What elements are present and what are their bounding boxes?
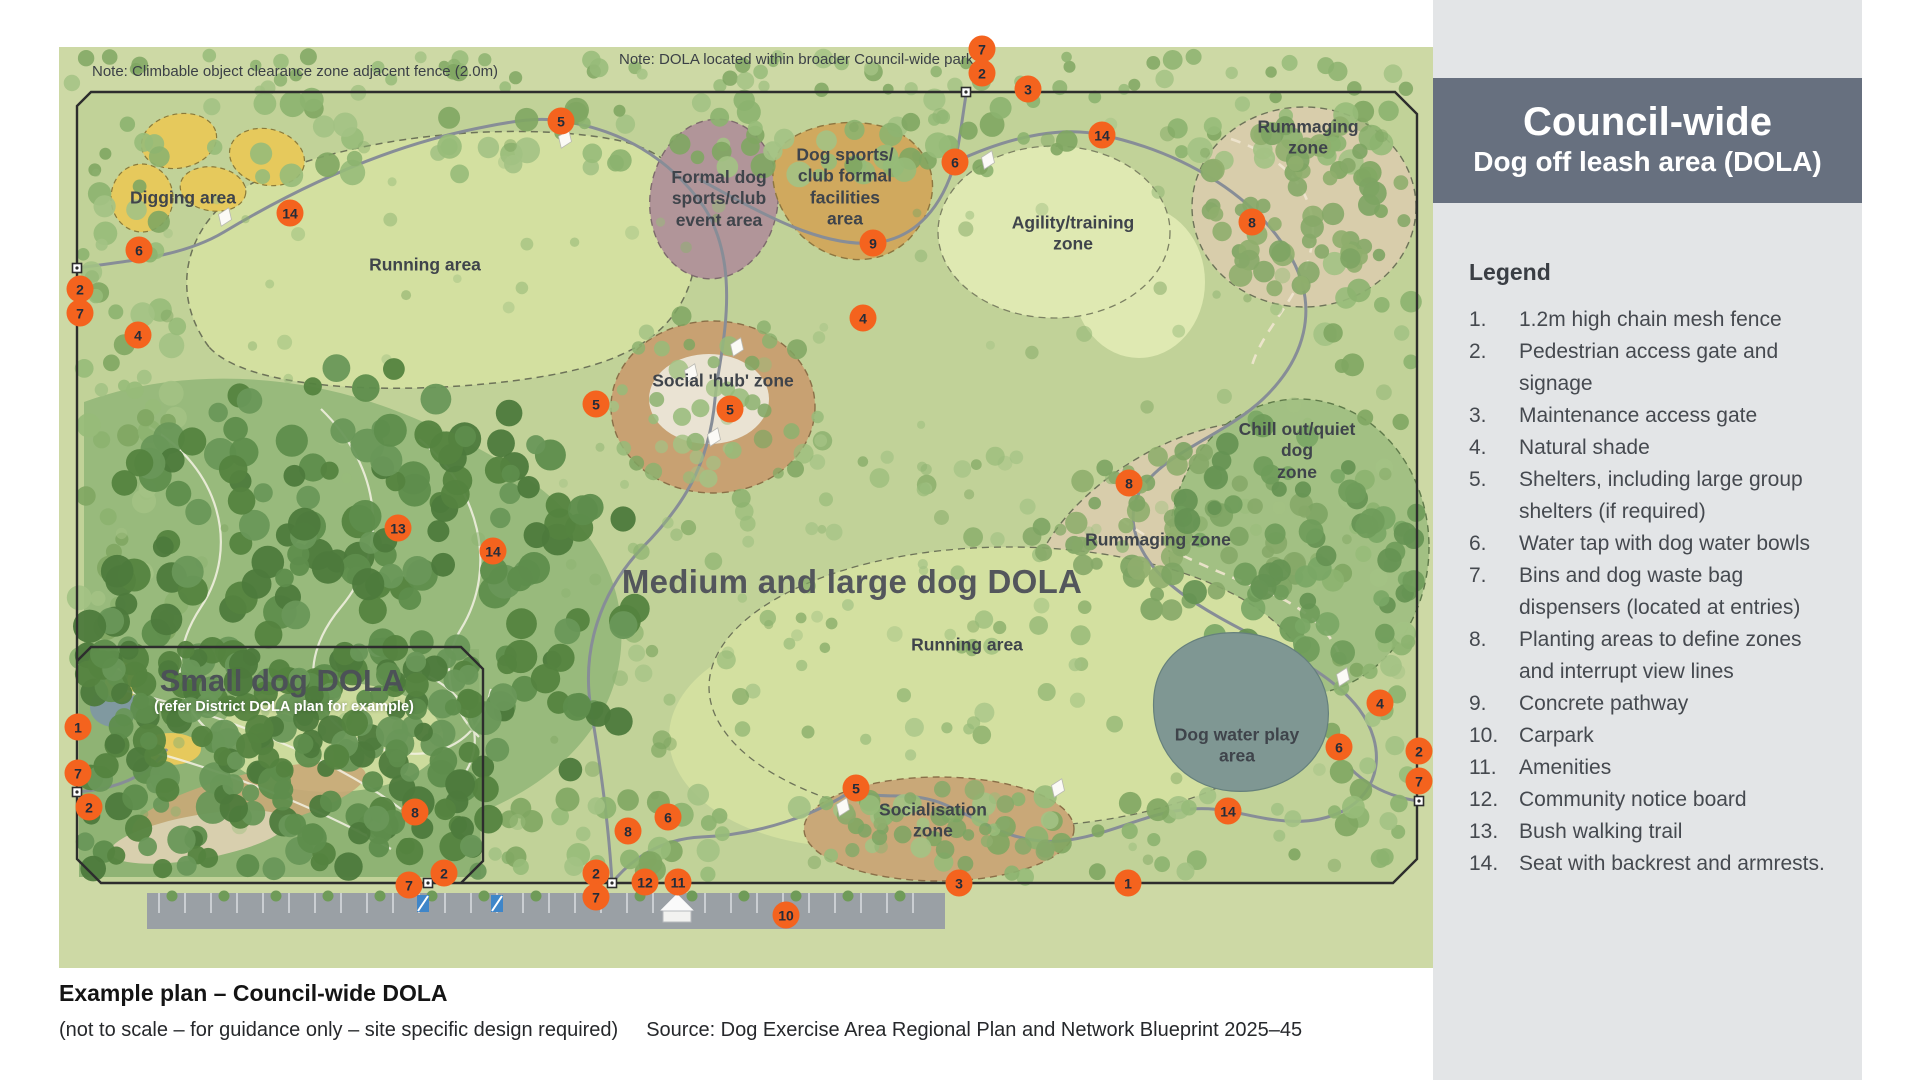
map-marker-2: 2: [1406, 738, 1433, 765]
legend-item: 2.Pedestrian access gate and signage: [1469, 336, 1836, 400]
map-marker-4: 4: [125, 322, 152, 349]
legend-item: 7.Bins and dog waste bag dispensers (loc…: [1469, 560, 1836, 624]
legend-item-label: Bush walking trail: [1519, 816, 1836, 848]
zone-label-small-dog-dola: Small dog DOLA: [160, 662, 405, 700]
zone-label-rummaging-zone-mid: Rummaging zone: [1085, 529, 1231, 550]
map-marker-2: 2: [431, 860, 458, 887]
legend-item: 10.Carpark: [1469, 720, 1836, 752]
legend-title: Legend: [1469, 259, 1836, 286]
legend-item-label: Bins and dog waste bag dispensers (locat…: [1519, 560, 1836, 624]
map-marker-14: 14: [1089, 122, 1116, 149]
caption: Example plan – Council-wide DOLA (not to…: [59, 980, 1302, 1042]
note-dola-park: Note: DOLA located within broader Counci…: [619, 51, 973, 68]
map-marker-2: 2: [76, 794, 103, 821]
map-marker-6: 6: [942, 149, 969, 176]
map-marker-2: 2: [969, 60, 996, 87]
legend-item-label: Shelters, including large group shelters…: [1519, 464, 1836, 528]
map-marker-7: 7: [67, 300, 94, 327]
zone-label-small-dog-dola-sub: (refer District DOLA plan for example): [154, 699, 414, 717]
legend-item: 1.1.2m high chain mesh fence: [1469, 304, 1836, 336]
legend-item-label: 1.2m high chain mesh fence: [1519, 304, 1836, 336]
park-map: Note: Climbable object clearance zone ad…: [59, 47, 1433, 968]
zone-label-rummaging-zone-top: Rummaging zone: [1246, 117, 1371, 160]
legend-item: 8.Planting areas to define zones and int…: [1469, 624, 1836, 688]
legend-item-number: 13.: [1469, 816, 1519, 848]
legend: Legend 1.1.2m high chain mesh fence2.Ped…: [1433, 203, 1862, 880]
legend-item: 14.Seat with backrest and armrests.: [1469, 848, 1836, 880]
zone-label-running-area-bottom: Running area: [911, 634, 1023, 655]
map-marker-14: 14: [1215, 798, 1242, 825]
sidebar: Council-wide Dog off leash area (DOLA) L…: [1433, 0, 1862, 1080]
legend-item-label: Carpark: [1519, 720, 1836, 752]
map-marker-8: 8: [1239, 209, 1266, 236]
legend-item-number: 6.: [1469, 528, 1519, 560]
page: Note: Climbable object clearance zone ad…: [0, 0, 1920, 1080]
legend-item-label: Pedestrian access gate and signage: [1519, 336, 1836, 400]
map-marker-2: 2: [67, 276, 94, 303]
map-marker-13: 13: [385, 515, 412, 542]
legend-item-number: 14.: [1469, 848, 1519, 880]
map-marker-1: 1: [65, 714, 92, 741]
map-marker-5: 5: [583, 391, 610, 418]
map-marker-6: 6: [126, 237, 153, 264]
page-subtitle: Dog off leash area (DOLA): [1445, 144, 1850, 179]
map-marker-4: 4: [850, 305, 877, 332]
map-marker-7: 7: [65, 760, 92, 787]
map-marker-12: 12: [632, 869, 659, 896]
legend-item-number: 7.: [1469, 560, 1519, 624]
map-marker-6: 6: [655, 804, 682, 831]
legend-item-label: Natural shade: [1519, 432, 1836, 464]
map-marker-3: 3: [1015, 76, 1042, 103]
legend-item-label: Planting areas to define zones and inter…: [1519, 624, 1836, 688]
map-marker-10: 10: [773, 902, 800, 929]
map-marker-8: 8: [1116, 470, 1143, 497]
map-marker-5: 5: [717, 396, 744, 423]
map-marker-9: 9: [860, 230, 887, 257]
map-marker-14: 14: [277, 200, 304, 227]
legend-item-number: 10.: [1469, 720, 1519, 752]
legend-item-number: 3.: [1469, 400, 1519, 432]
map-marker-2: 2: [583, 860, 610, 887]
zone-label-chill-out-zone: Chill out/quiet dog zone: [1229, 419, 1365, 483]
page-title: Council-wide: [1445, 100, 1850, 144]
caption-title: Example plan – Council-wide DOLA: [59, 980, 1302, 1007]
legend-item: 3.Maintenance access gate: [1469, 400, 1836, 432]
zone-label-running-area-top: Running area: [369, 254, 481, 275]
legend-item-number: 4.: [1469, 432, 1519, 464]
legend-item-number: 8.: [1469, 624, 1519, 688]
legend-item-label: Seat with backrest and armrests.: [1519, 848, 1836, 880]
legend-item-number: 9.: [1469, 688, 1519, 720]
zone-label-club-facilities-area: Dog sports/ club formal facilities area: [796, 144, 893, 229]
legend-item-number: 11.: [1469, 752, 1519, 784]
map-marker-5: 5: [548, 108, 575, 135]
sidebar-header: Council-wide Dog off leash area (DOLA): [1433, 78, 1862, 203]
map-marker-7: 7: [396, 872, 423, 899]
legend-item-label: Maintenance access gate: [1519, 400, 1836, 432]
map-marker-8: 8: [615, 818, 642, 845]
map-marker-7: 7: [1406, 768, 1433, 795]
legend-item-number: 2.: [1469, 336, 1519, 400]
map-marker-7: 7: [969, 36, 996, 63]
map-marker-6: 6: [1326, 734, 1353, 761]
legend-item: 9.Concrete pathway: [1469, 688, 1836, 720]
map-marker-11: 11: [665, 869, 692, 896]
legend-list: 1.1.2m high chain mesh fence2.Pedestrian…: [1469, 304, 1836, 880]
legend-item-label: Concrete pathway: [1519, 688, 1836, 720]
legend-item: 12.Community notice board: [1469, 784, 1836, 816]
zone-label-medium-large-dola: Medium and large dog DOLA: [622, 562, 1082, 602]
caption-note: (not to scale – for guidance only – site…: [59, 1019, 618, 1042]
legend-item: 5.Shelters, including large group shelte…: [1469, 464, 1836, 528]
note-clearance: Note: Climbable object clearance zone ad…: [92, 63, 498, 80]
legend-item: 11.Amenities: [1469, 752, 1836, 784]
legend-item-label: Amenities: [1519, 752, 1836, 784]
map-marker-7: 7: [583, 884, 610, 911]
zone-label-socialisation-zone: Socialisation zone: [879, 800, 987, 843]
zone-label-formal-event-area: Formal dog sports/club event area: [671, 167, 766, 231]
map-marker-4: 4: [1367, 690, 1394, 717]
map-marker-5: 5: [843, 775, 870, 802]
map-marker-3: 3: [946, 870, 973, 897]
map-marker-8: 8: [402, 799, 429, 826]
legend-item-number: 12.: [1469, 784, 1519, 816]
zone-label-digging-area: Digging area: [130, 187, 236, 208]
legend-item: 4.Natural shade: [1469, 432, 1836, 464]
legend-item-number: 5.: [1469, 464, 1519, 528]
legend-item-label: Water tap with dog water bowls: [1519, 528, 1836, 560]
legend-item: 6.Water tap with dog water bowls: [1469, 528, 1836, 560]
zone-label-agility-zone: Agility/training zone: [1012, 213, 1135, 256]
zone-label-dog-water-play-area: Dog water play area: [1175, 725, 1299, 768]
legend-item-label: Community notice board: [1519, 784, 1836, 816]
zone-label-social-hub-zone: Social 'hub' zone: [652, 370, 794, 391]
caption-source: Source: Dog Exercise Area Regional Plan …: [646, 1019, 1302, 1042]
map-marker-1: 1: [1115, 870, 1142, 897]
map-marker-14: 14: [480, 538, 507, 565]
legend-item: 13.Bush walking trail: [1469, 816, 1836, 848]
legend-item-number: 1.: [1469, 304, 1519, 336]
